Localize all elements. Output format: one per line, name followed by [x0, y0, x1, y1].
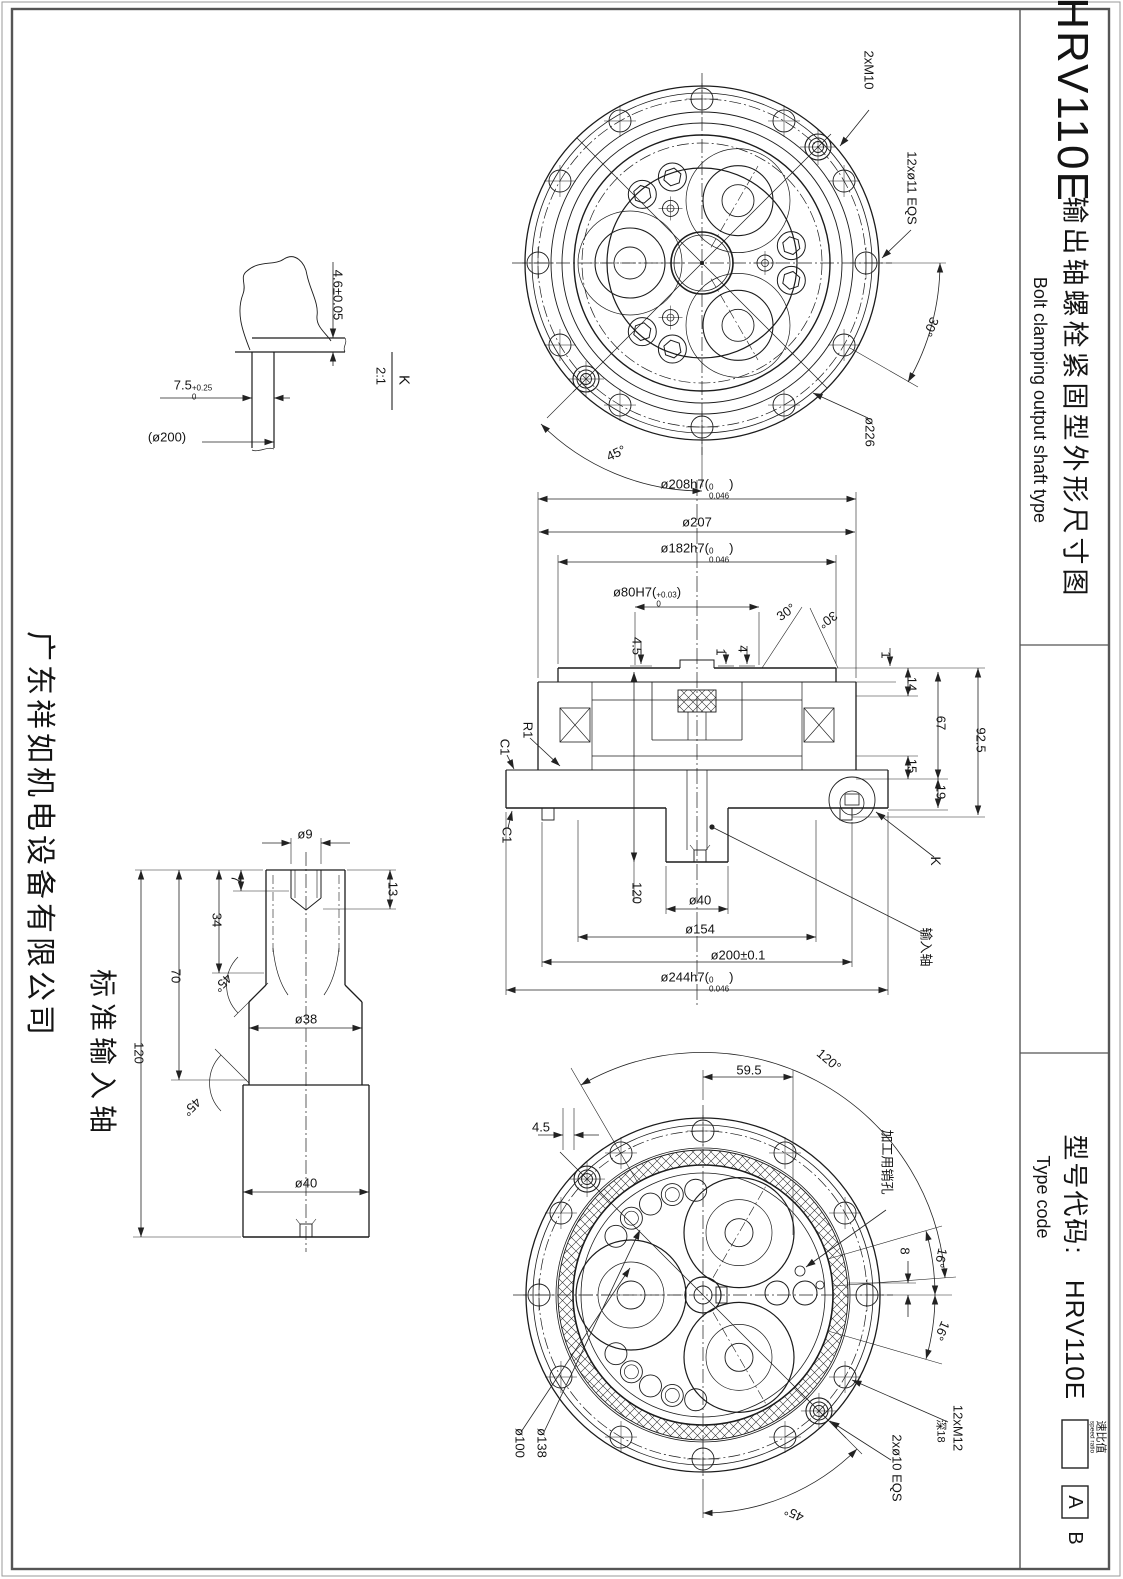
suffix-a: A [1065, 1495, 1085, 1508]
input-shaft-view [133, 838, 396, 1252]
drawing-canvas [0, 0, 1123, 1579]
speed-ratio-box [1062, 1420, 1088, 1468]
type-code-label-cn: 型号代码: [1062, 1134, 1088, 1255]
title-cn: 输出轴螺栓紧固型外形尺寸图 [1061, 197, 1088, 600]
drawing-sheet: 2xM1012xø11 EQS30°ø22645°4.6±0.05K2:17.5… [0, 0, 1123, 1579]
section-view [506, 480, 985, 1005]
input-shaft-title: 标准输入轴 [88, 969, 116, 1139]
company-name: 广东祥如机电设备有限公司 [24, 631, 54, 1039]
detail-k-view [160, 257, 392, 451]
speed-ratio-label-cn: 速比值 [1095, 1421, 1106, 1454]
suffix-b: B [1065, 1531, 1085, 1544]
sheet-frame [2, 2, 1120, 1576]
bottom-view [513, 1052, 956, 1518]
type-code-label-en: Type code [1034, 1155, 1052, 1238]
title-model: HRV110E [1050, 0, 1094, 203]
type-code-model: HRV110E [1062, 1280, 1088, 1400]
speed-ratio-label-en: speed ratio [1088, 1421, 1095, 1453]
title-en: Bolt clamping output shaft type [1031, 277, 1049, 523]
top-view [512, 73, 946, 491]
